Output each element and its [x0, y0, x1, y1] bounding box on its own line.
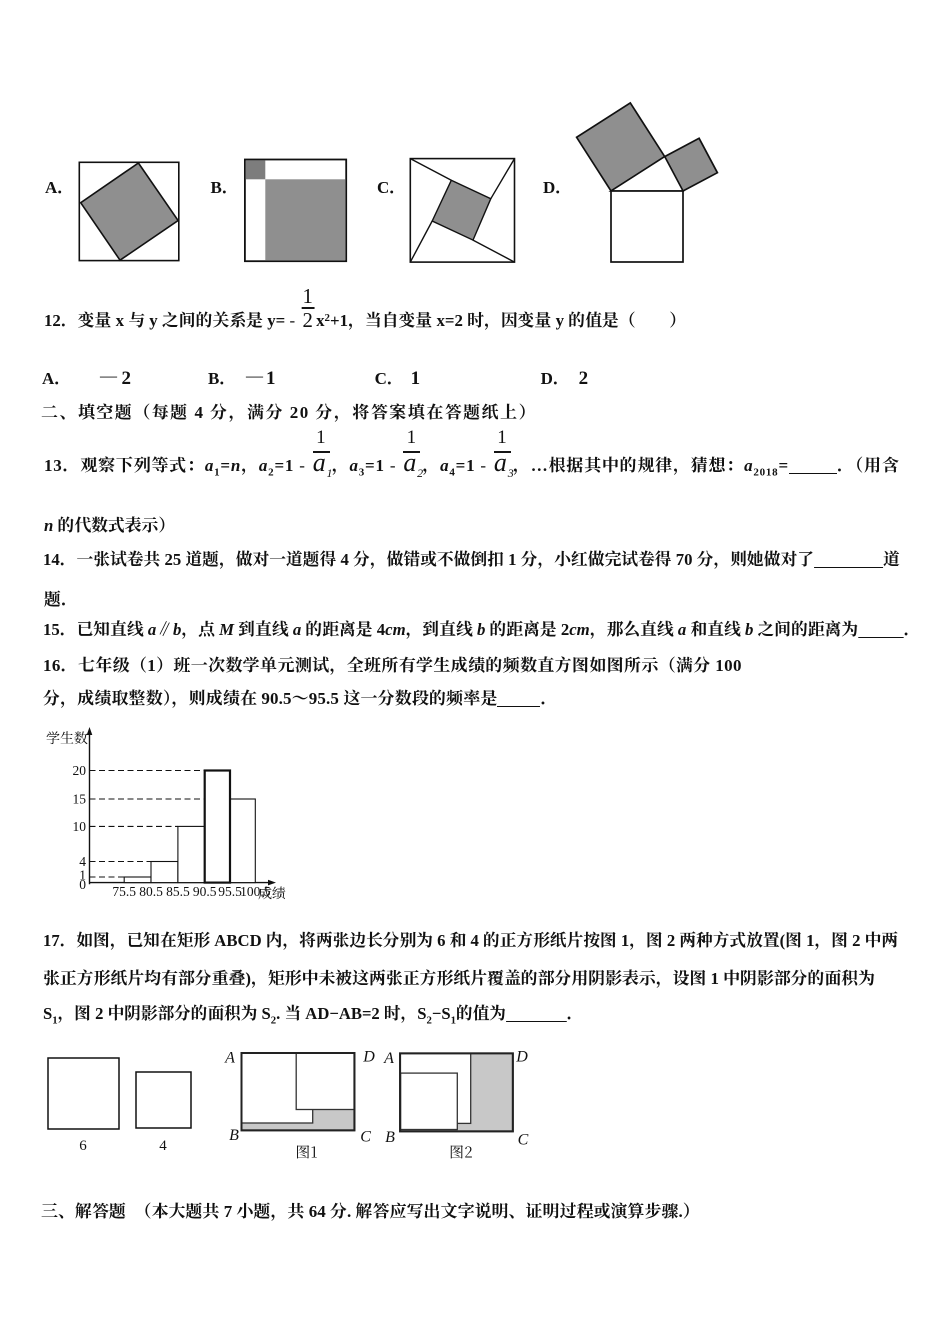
svg-text:图2: 图2 — [449, 1142, 472, 1163]
svg-text:90.5: 90.5 — [193, 884, 217, 899]
svg-text:学生数: 学生数 — [46, 728, 88, 748]
svg-text:15: 15 — [73, 792, 87, 807]
svg-text:10: 10 — [73, 819, 87, 834]
svg-text:95.5: 95.5 — [218, 884, 242, 899]
svg-text:80.5: 80.5 — [139, 884, 163, 899]
svg-text:85.5: 85.5 — [166, 884, 190, 899]
svg-text:B: B — [229, 1127, 239, 1144]
svg-text:C: C — [360, 1129, 371, 1146]
svg-text:0: 0 — [79, 877, 86, 892]
svg-text:20: 20 — [73, 763, 87, 778]
svg-text:D: D — [515, 1049, 528, 1066]
svg-text:B: B — [385, 1129, 395, 1146]
svg-text:A: A — [224, 1050, 235, 1067]
svg-text:A: A — [383, 1050, 394, 1067]
svg-text:100.5: 100.5 — [240, 884, 271, 899]
svg-text:C: C — [518, 1132, 529, 1149]
svg-text:6: 6 — [79, 1138, 87, 1154]
svg-text:75.5: 75.5 — [112, 884, 136, 899]
svg-text:4: 4 — [159, 1138, 167, 1154]
svg-text:图1: 图1 — [295, 1142, 317, 1163]
svg-text:D: D — [362, 1049, 375, 1066]
